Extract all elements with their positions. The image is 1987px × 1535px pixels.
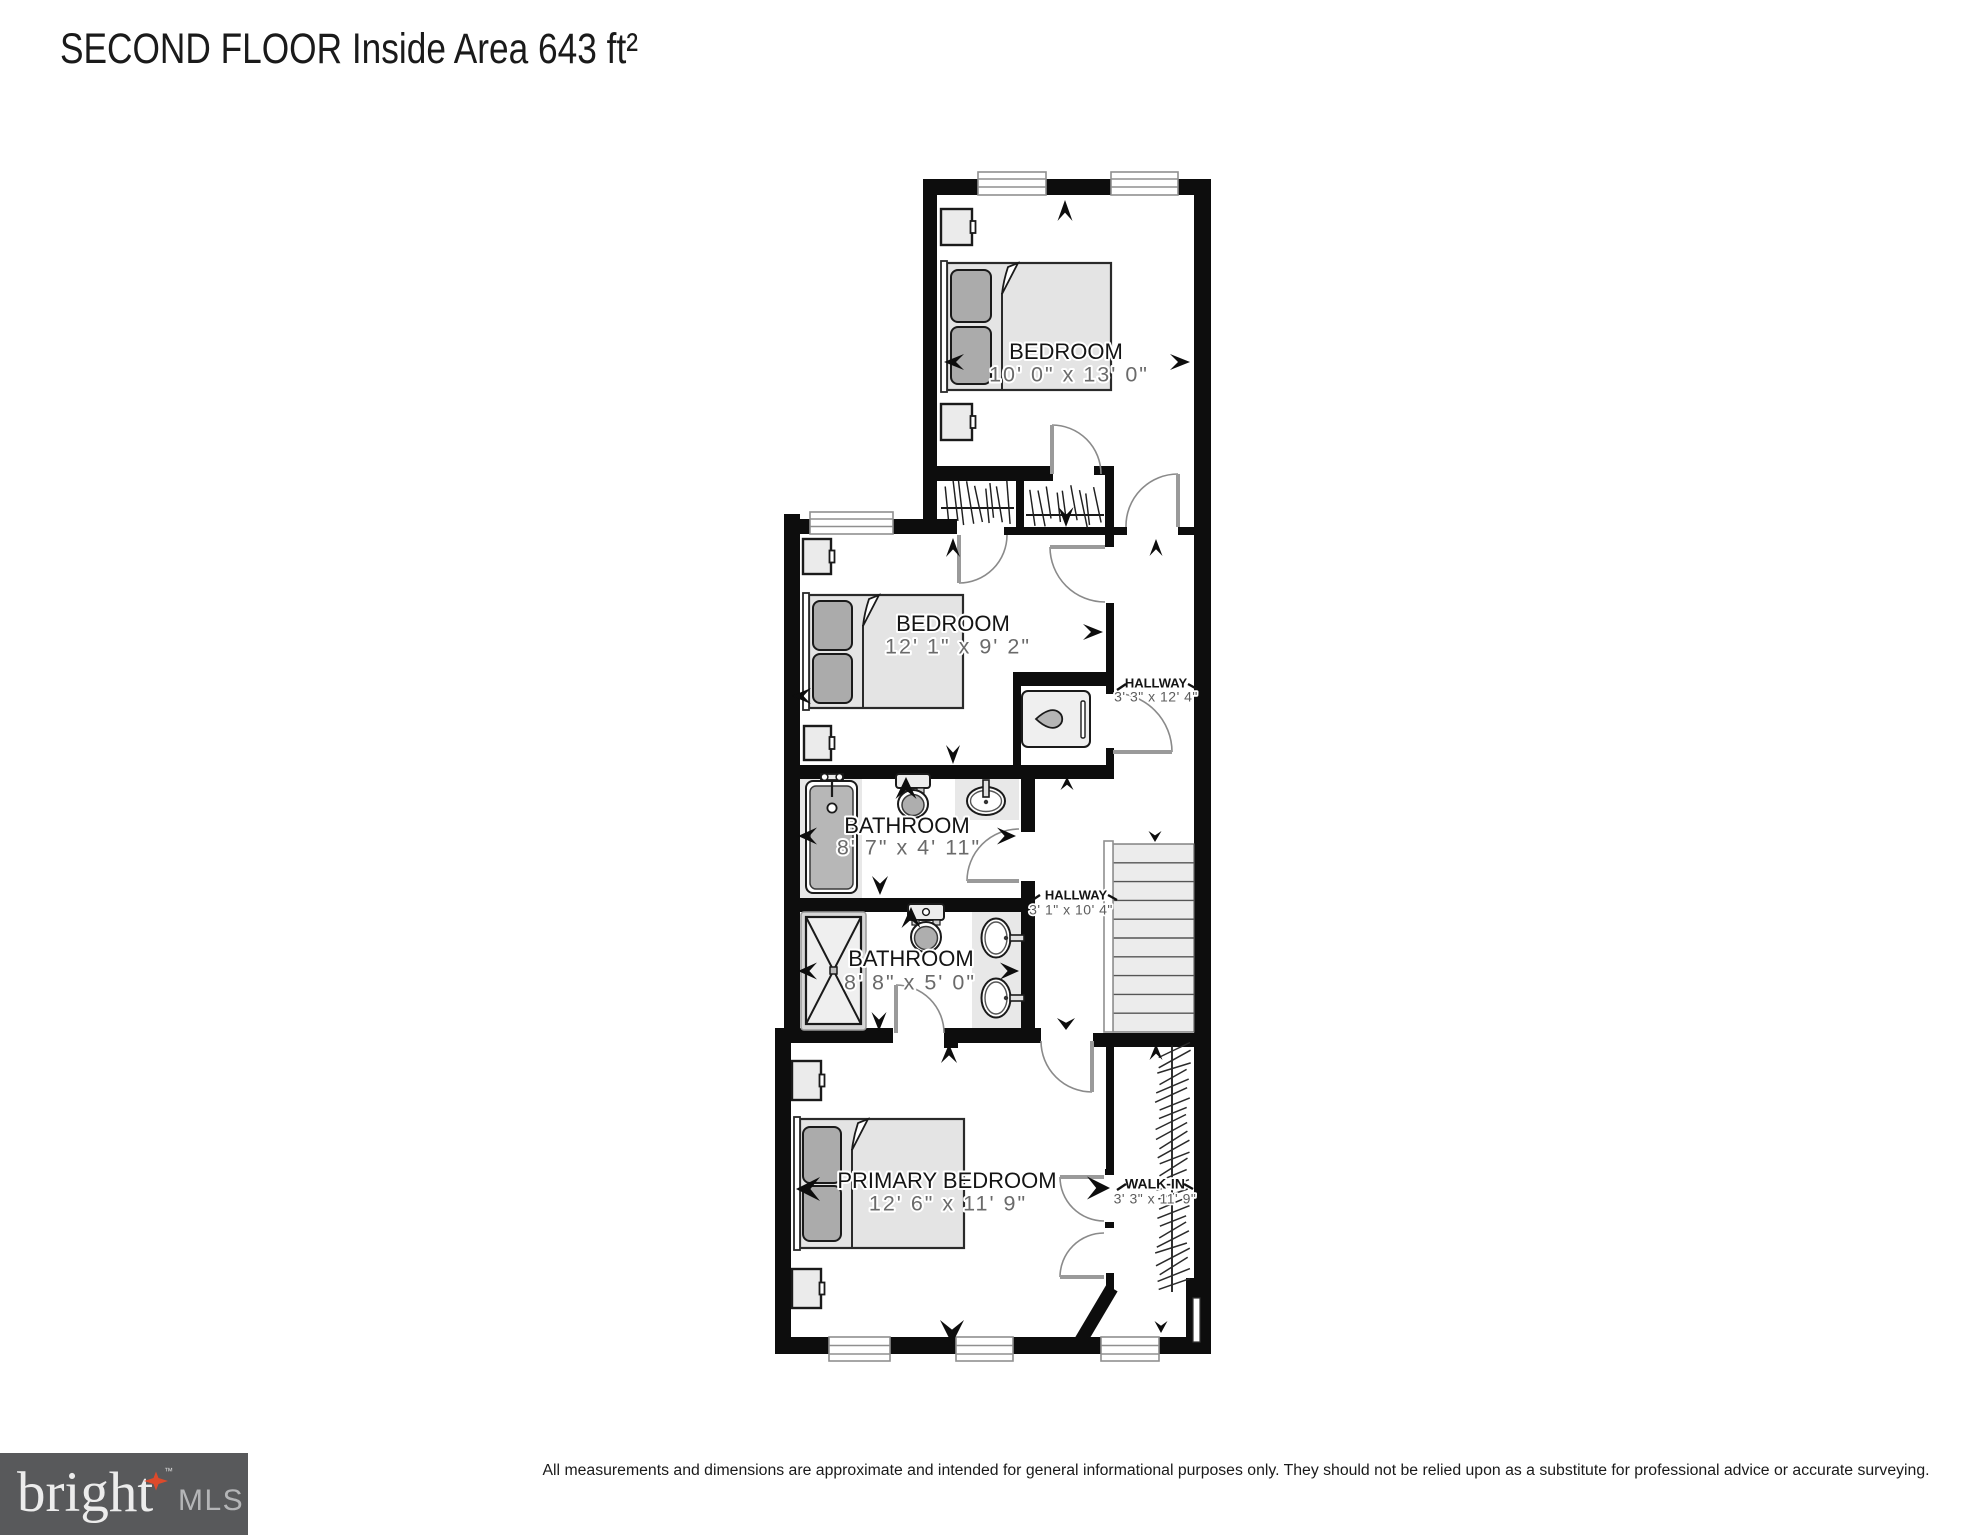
- svg-text:WALK-IN: WALK-IN: [1125, 1176, 1185, 1192]
- svg-text:10' 0" x 13' 0": 10' 0" x 13' 0": [989, 363, 1149, 387]
- svg-text:3' 3" x 11' 9": 3' 3" x 11' 9": [1114, 1191, 1197, 1207]
- svg-text:PRIMARY BEDROOM: PRIMARY BEDROOM: [837, 1168, 1056, 1193]
- svg-text:BATHROOM: BATHROOM: [844, 813, 969, 838]
- svg-text:™: ™: [164, 1466, 173, 1476]
- svg-text:bright: bright: [17, 1461, 153, 1524]
- svg-text:3' 3" x 12' 4": 3' 3" x 12' 4": [1114, 689, 1198, 705]
- svg-text:All measurements and dimension: All measurements and dimensions are appr…: [543, 1462, 1930, 1479]
- svg-text:BEDROOM: BEDROOM: [896, 611, 1010, 636]
- svg-text:SECOND FLOOR Inside Area 643 f: SECOND FLOOR Inside Area 643 ft²: [60, 25, 638, 73]
- svg-text:12' 1" x 9' 2": 12' 1" x 9' 2": [885, 635, 1031, 659]
- svg-text:BEDROOM: BEDROOM: [1009, 339, 1123, 364]
- svg-text:8' 7" x 4' 11": 8' 7" x 4' 11": [837, 836, 981, 860]
- svg-text:BATHROOM: BATHROOM: [848, 946, 973, 971]
- svg-text:3' 1" x 10' 4": 3' 1" x 10' 4": [1029, 902, 1113, 918]
- svg-text:HALLWAY: HALLWAY: [1045, 887, 1108, 902]
- svg-text:MLS: MLS: [178, 1484, 244, 1517]
- svg-text:8' 8" x 5' 0": 8' 8" x 5' 0": [844, 971, 976, 995]
- svg-text:12' 6" x 11' 9": 12' 6" x 11' 9": [869, 1192, 1027, 1216]
